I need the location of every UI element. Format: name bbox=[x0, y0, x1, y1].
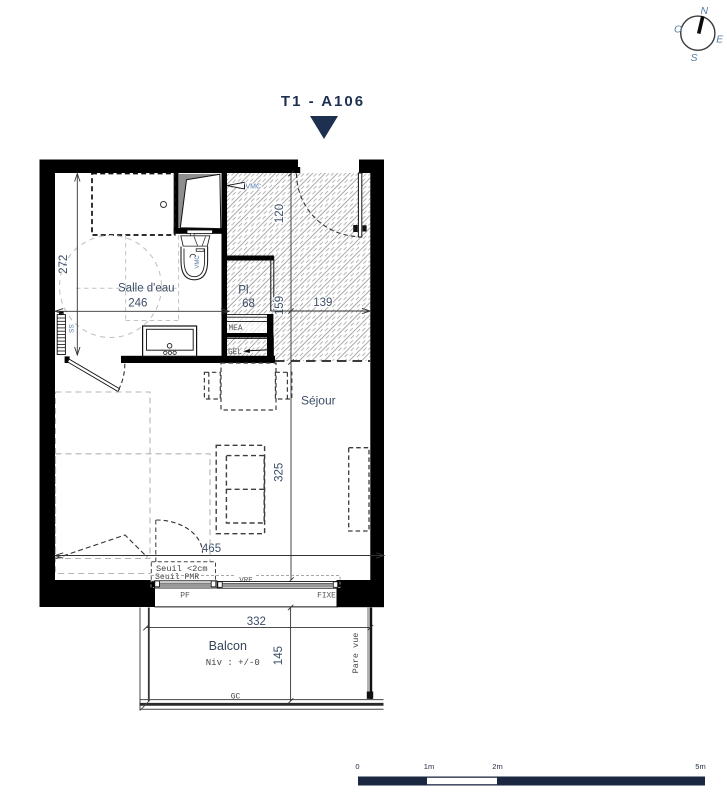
svg-text:S: S bbox=[690, 52, 697, 64]
svg-text:PF: PF bbox=[180, 591, 190, 600]
svg-text:145: 145 bbox=[273, 646, 285, 665]
svg-text:Salle d'eau: Salle d'eau bbox=[118, 283, 175, 295]
svg-text:VMC: VMC bbox=[246, 183, 262, 190]
svg-text:272: 272 bbox=[58, 255, 70, 274]
svg-text:Pl.: Pl. bbox=[238, 285, 251, 297]
svg-text:E: E bbox=[716, 34, 724, 46]
svg-text:Seuil PMR: Seuil PMR bbox=[155, 572, 199, 582]
svg-text:N: N bbox=[701, 5, 709, 17]
svg-text:SS: SS bbox=[67, 324, 74, 333]
svg-text:68: 68 bbox=[242, 298, 255, 310]
svg-text:159: 159 bbox=[274, 296, 286, 315]
svg-text:332: 332 bbox=[247, 616, 266, 628]
svg-text:Balcon: Balcon bbox=[209, 639, 247, 653]
svg-text:325: 325 bbox=[274, 463, 286, 482]
svg-text:139: 139 bbox=[313, 297, 332, 309]
svg-text:246: 246 bbox=[128, 298, 147, 310]
svg-text:2m: 2m bbox=[492, 762, 502, 771]
svg-text:465: 465 bbox=[202, 543, 221, 555]
svg-text:5m: 5m bbox=[695, 762, 705, 771]
svg-text:GC: GC bbox=[231, 693, 241, 702]
svg-text:Niv : +/-0: Niv : +/-0 bbox=[206, 658, 260, 668]
svg-text:120: 120 bbox=[274, 204, 286, 223]
svg-text:T1 - A106: T1 - A106 bbox=[281, 93, 365, 110]
svg-text:Séjour: Séjour bbox=[301, 394, 336, 408]
svg-text:O: O bbox=[674, 24, 682, 36]
svg-text:FIXE: FIXE bbox=[317, 592, 336, 600]
svg-text:GEL: GEL bbox=[228, 349, 242, 357]
svg-text:MEA: MEA bbox=[229, 325, 243, 333]
svg-text:Pare vue: Pare vue bbox=[351, 633, 361, 674]
svg-text:0: 0 bbox=[355, 762, 359, 771]
svg-text:VMC: VMC bbox=[195, 255, 201, 269]
svg-text:1m: 1m bbox=[424, 762, 434, 771]
